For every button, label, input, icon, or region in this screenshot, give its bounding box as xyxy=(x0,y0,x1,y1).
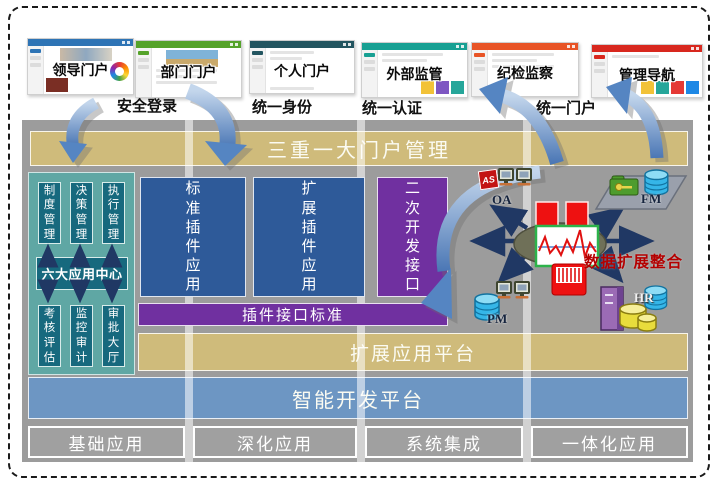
system-label-hr: HR xyxy=(634,290,654,306)
standard-plugin-label: 标准插件应用 xyxy=(185,179,201,294)
extend-plugin-label: 扩展插件应用 xyxy=(301,179,317,294)
news-photo xyxy=(46,78,68,92)
standard-plugin-box: 标准插件应用 xyxy=(140,177,246,297)
window-dot xyxy=(456,45,459,48)
window-dot xyxy=(343,43,346,46)
window-dot xyxy=(230,43,233,46)
window-dot xyxy=(572,45,575,48)
placeholder-line xyxy=(612,55,659,58)
placeholder-line xyxy=(382,59,427,62)
browser-titlebar xyxy=(28,39,133,46)
placeholder-line xyxy=(270,57,302,60)
extend-platform-bar: 扩展应用平台 xyxy=(138,333,688,371)
app-center-item-label: 制度管理 xyxy=(43,184,55,243)
window-dot xyxy=(696,47,699,50)
app-center-item-approval: 审批大厅 xyxy=(102,305,125,367)
auth-label-unified-auth: 统一认证 xyxy=(346,97,438,118)
sidebar-item-selected xyxy=(30,49,41,53)
window-dot xyxy=(235,43,238,46)
portal-thumbnail-discipline: 纪检监察 xyxy=(471,42,579,97)
bottom-app-unified: 一体化应用 xyxy=(531,426,688,458)
portal-label: 领导门户 xyxy=(28,60,133,80)
sidebar-item-selected xyxy=(594,55,605,59)
browser-titlebar xyxy=(362,43,467,50)
as-badge: AS xyxy=(478,169,499,190)
system-label-fm: FM xyxy=(641,191,661,207)
app-center-item-label: 决策管理 xyxy=(75,184,87,243)
app-center-item-label: 考核评估 xyxy=(43,307,55,366)
sidebar-item-selected xyxy=(474,53,485,57)
window-dot xyxy=(461,45,464,48)
portal-thumbnail-leader: 领导门户 xyxy=(27,38,134,95)
data-integration-title: 数据扩展整合 xyxy=(584,250,683,272)
bottom-app-deepening: 深化应用 xyxy=(193,426,357,458)
placeholder-line xyxy=(270,51,314,54)
portal-label: 个人门户 xyxy=(250,61,354,81)
browser-titlebar xyxy=(592,45,702,52)
browser-titlebar xyxy=(472,43,578,50)
portal-label: 外部监管 xyxy=(362,64,467,84)
app-center-item-decision: 决策管理 xyxy=(70,182,93,244)
app-center-item-regulation: 制度管理 xyxy=(38,182,61,244)
window-dot xyxy=(122,41,125,44)
plugin-interface-standard-bar: 插件接口标准 xyxy=(138,303,448,326)
portal-label: 管理导航 xyxy=(592,65,702,85)
app-center-item-label: 监控审计 xyxy=(75,307,87,366)
portal-thumbnail-department: 部门门户 xyxy=(135,40,242,98)
secondary-dev-interface-label: 二次开发接口 xyxy=(405,179,421,294)
system-label-oa: OA xyxy=(492,192,512,208)
app-center-item-monitoring: 监控审计 xyxy=(70,305,93,367)
system-label-pm: PM xyxy=(487,311,507,327)
extend-plugin-box: 扩展插件应用 xyxy=(253,177,365,297)
placeholder-line xyxy=(492,59,537,62)
bottom-app-integration: 系统集成 xyxy=(365,426,523,458)
column-divider xyxy=(523,120,531,462)
portal-label: 纪检监察 xyxy=(472,63,578,83)
window-dot xyxy=(567,45,570,48)
placeholder-line xyxy=(382,53,443,56)
six-application-center-box: 六大应用中心 xyxy=(36,257,128,290)
portal-thumbnail-navigation: 管理导航 xyxy=(591,44,703,98)
sidebar-item-selected xyxy=(252,51,263,55)
window-dot xyxy=(127,41,130,44)
app-center-item-label: 执行管理 xyxy=(107,184,119,243)
app-center-item-assessment: 考核评估 xyxy=(38,305,61,367)
app-center-item-execution: 执行管理 xyxy=(102,182,125,244)
secondary-dev-interface-box: 二次开发接口 xyxy=(377,177,448,297)
sidebar-item-selected xyxy=(364,53,375,57)
app-center-item-label: 审批大厅 xyxy=(107,307,119,366)
auth-label-unified-portal: 统一门户 xyxy=(520,97,612,118)
portal-thumbnail-external: 外部监管 xyxy=(361,42,468,98)
six-application-center-group: 制度管理 决策管理 执行管理 六大应用中心 考核评估 监控审计 审批大厅 xyxy=(28,172,135,375)
architecture-diagram: 领导门户 部门门户 个人门户 xyxy=(0,0,717,486)
auth-label-unified-identity: 统一身份 xyxy=(236,96,328,117)
browser-titlebar xyxy=(250,41,354,48)
placeholder-line xyxy=(270,87,314,90)
portal-label: 部门门户 xyxy=(136,62,241,82)
browser-titlebar xyxy=(136,41,241,48)
window-dot xyxy=(348,43,351,46)
sidebar-item-selected xyxy=(138,51,149,55)
auth-label-secure-login: 安全登录 xyxy=(101,95,193,116)
portal-thumbnail-personal: 个人门户 xyxy=(249,40,355,94)
bottom-app-basic: 基础应用 xyxy=(28,426,185,458)
placeholder-line xyxy=(492,53,554,56)
window-dot xyxy=(691,47,694,50)
